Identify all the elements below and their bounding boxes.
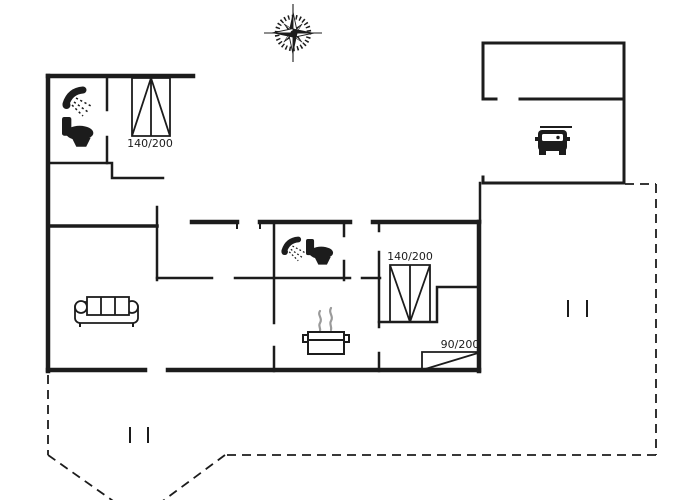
cooking-pot-icon — [303, 308, 349, 354]
bed-size-label: 140/200 — [124, 137, 176, 150]
single-bed-symbol-southeast — [422, 352, 478, 370]
toilet-icon-bath1 — [62, 117, 93, 147]
car-icon — [535, 127, 572, 155]
sofa-icon — [75, 297, 138, 327]
floor-plan: 140/200 140/200 90/200 — [0, 0, 700, 500]
double-bed-symbol-east — [390, 265, 430, 322]
walls-outer — [48, 76, 479, 371]
shower-icon-bath1 — [63, 90, 92, 116]
bath1-south-step-wall — [48, 163, 163, 178]
shower-icon-bath2 — [281, 239, 304, 260]
bedroom-east-step-wall — [379, 287, 479, 322]
bed-size-label: 140/200 — [384, 250, 436, 263]
double-bed-symbol-northwest — [132, 78, 170, 136]
steam — [319, 308, 332, 331]
terrace-dashed-outline — [48, 184, 656, 500]
floor-plan-drawing — [0, 0, 700, 500]
bed-size-label: 90/200 — [436, 338, 484, 351]
compass-rose-icon — [264, 4, 322, 62]
door-jamb-ticks — [237, 222, 260, 228]
carport-bottom — [483, 177, 624, 183]
toilet-icon-bath2 — [306, 239, 333, 265]
